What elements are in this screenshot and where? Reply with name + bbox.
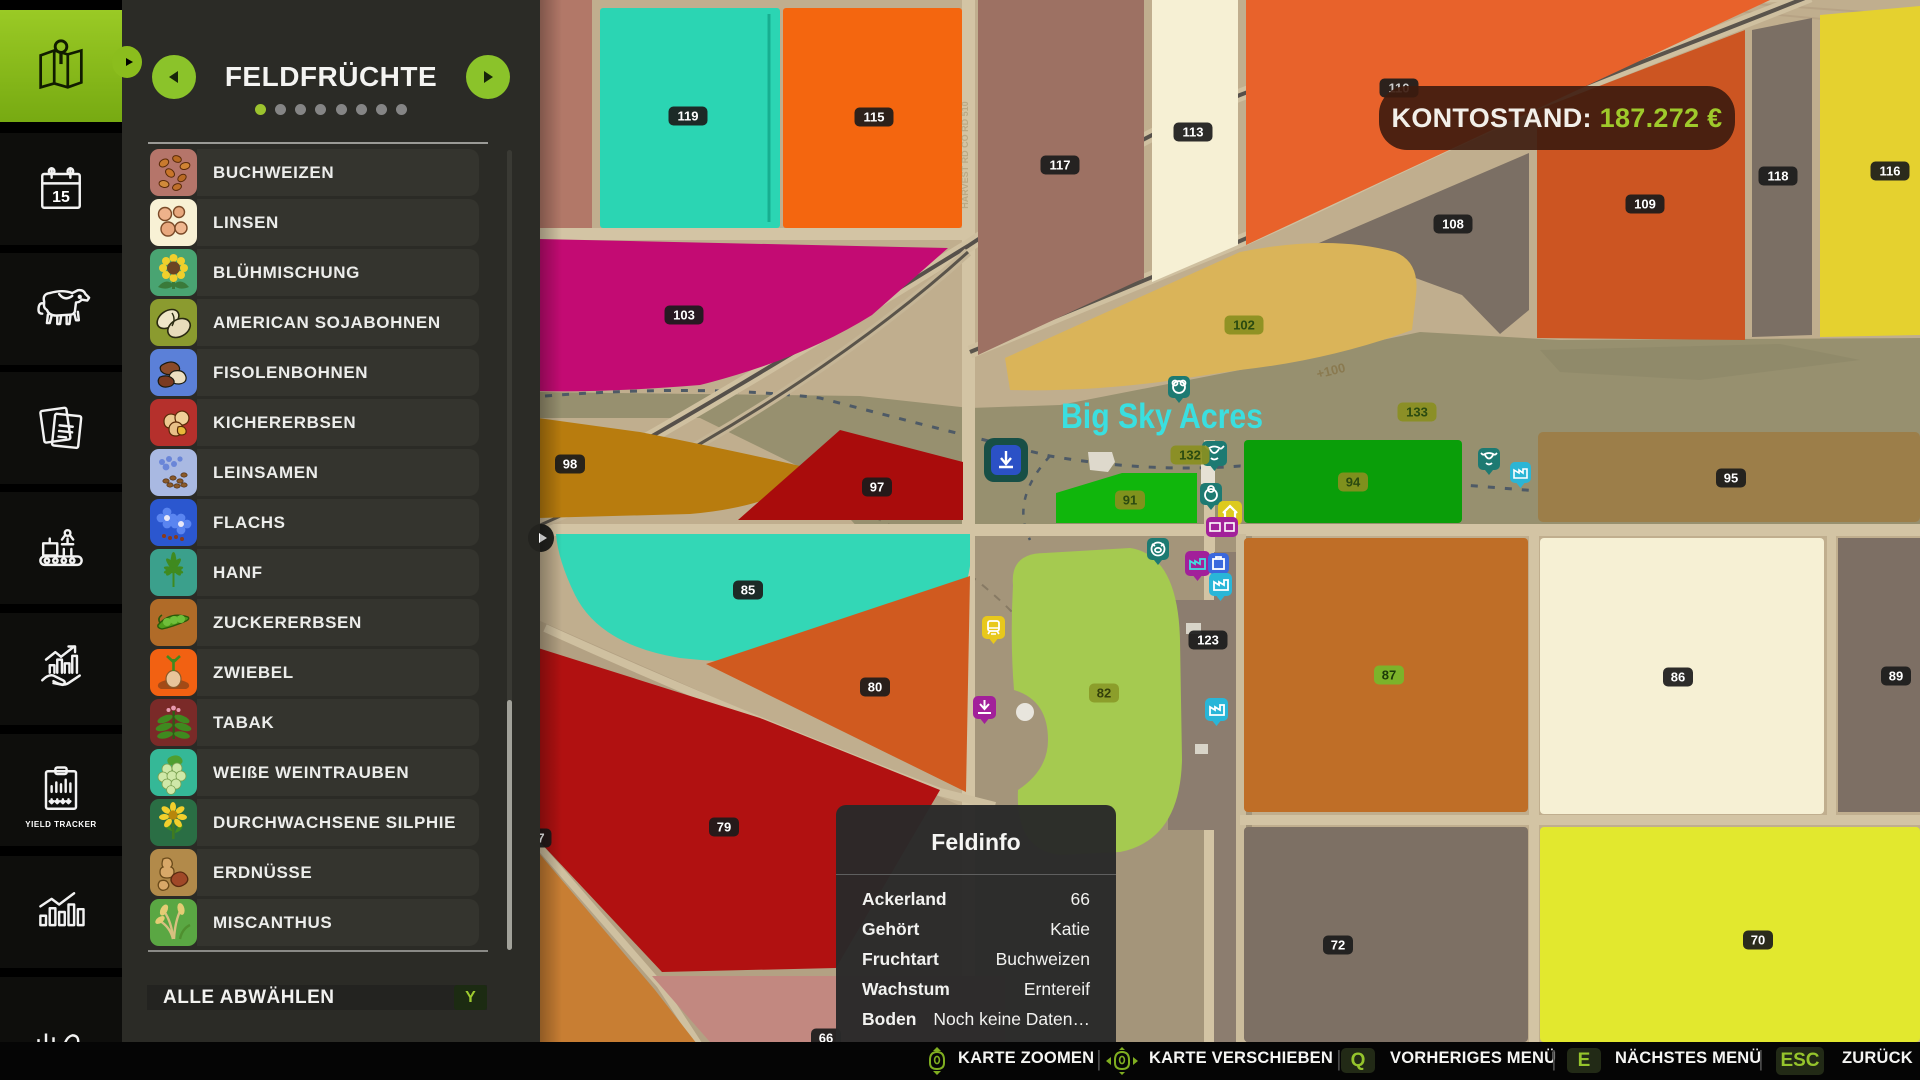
svg-text:86: 86 (1671, 670, 1685, 685)
svg-text:15: 15 (52, 189, 70, 206)
svg-text:82: 82 (1097, 686, 1111, 701)
svg-text:103: 103 (673, 308, 695, 323)
svg-text:70: 70 (1751, 933, 1765, 948)
svg-text:89: 89 (1889, 669, 1903, 684)
svg-text:123: 123 (1197, 633, 1219, 648)
svg-text:115: 115 (864, 110, 885, 125)
svg-text:91: 91 (1123, 493, 1137, 508)
svg-text:80: 80 (868, 680, 882, 695)
svg-text:87: 87 (1382, 668, 1396, 683)
svg-text:117: 117 (1050, 158, 1071, 173)
svg-text:79: 79 (717, 820, 731, 835)
svg-text:95: 95 (1724, 471, 1738, 486)
svg-text:109: 109 (1634, 197, 1656, 212)
svg-text:133: 133 (1406, 405, 1428, 420)
svg-text:108: 108 (1442, 217, 1464, 232)
svg-text:132: 132 (1179, 448, 1201, 463)
svg-text:94: 94 (1346, 475, 1361, 490)
svg-text:116: 116 (1880, 164, 1901, 179)
svg-text:HARVEST RD CO RD 510: HARVEST RD CO RD 510 (960, 101, 970, 208)
svg-text:102: 102 (1233, 318, 1255, 333)
svg-text:85: 85 (741, 583, 755, 598)
svg-text:Big Sky Acres: Big Sky Acres (1061, 397, 1263, 436)
svg-text:97: 97 (870, 480, 884, 495)
svg-text:118: 118 (1768, 169, 1789, 184)
svg-text:119: 119 (678, 109, 699, 124)
svg-text:72: 72 (1331, 938, 1345, 953)
svg-text:113: 113 (1183, 125, 1204, 140)
svg-text:98: 98 (563, 457, 577, 472)
